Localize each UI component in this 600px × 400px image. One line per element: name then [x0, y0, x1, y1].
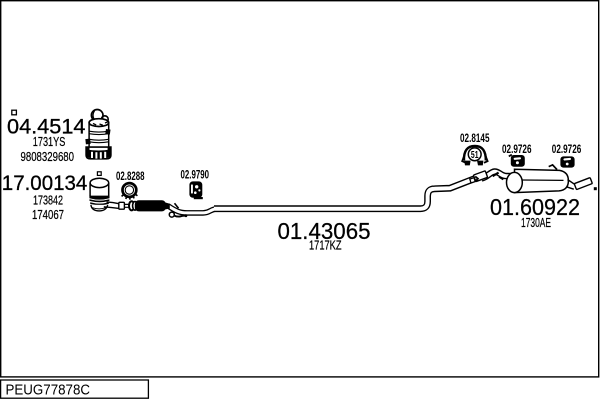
svg-text:9808329680: 9808329680 — [21, 150, 75, 164]
svg-text:02.8145: 02.8145 — [460, 131, 490, 145]
svg-text:02.9790: 02.9790 — [181, 168, 210, 182]
svg-text:1717KZ: 1717KZ — [309, 239, 342, 253]
svg-text:1730AE: 1730AE — [521, 216, 551, 230]
svg-text:174067: 174067 — [32, 208, 64, 222]
svg-text:51: 51 — [471, 150, 479, 161]
svg-text:173842: 173842 — [33, 194, 63, 208]
svg-text:PEUG77878C: PEUG77878C — [6, 381, 91, 398]
svg-text:02.9726: 02.9726 — [552, 142, 582, 156]
svg-text:02.8288: 02.8288 — [116, 169, 145, 183]
svg-text:02.9726: 02.9726 — [502, 142, 532, 156]
svg-text:17.00134: 17.00134 — [2, 172, 88, 195]
svg-text:1731YS: 1731YS — [33, 135, 66, 149]
